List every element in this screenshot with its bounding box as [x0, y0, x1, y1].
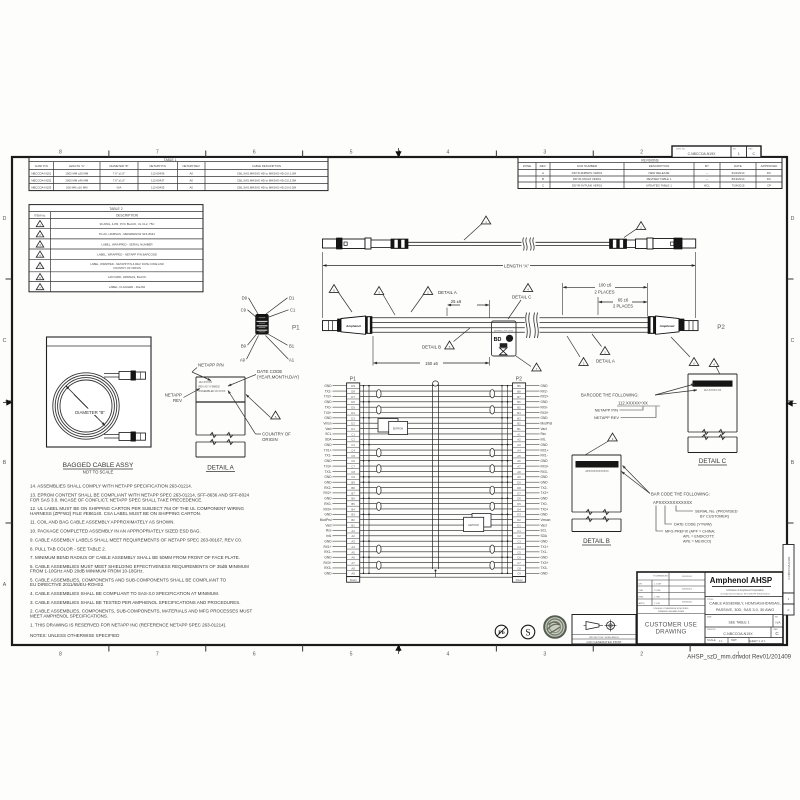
svg-text:Vact: Vact — [325, 523, 331, 527]
svg-text:A4: A4 — [517, 448, 521, 452]
svg-text:SERIAL No. (PROVIDED: SERIAL No. (PROVIDED — [695, 510, 738, 514]
svg-text:B8: B8 — [517, 389, 521, 393]
svg-text:A2: A2 — [517, 438, 521, 442]
svg-text:LABEL, FLAGGED - RoHS2: LABEL, FLAGGED - RoHS2 — [109, 285, 146, 289]
svg-text:NETAPP REV: NETAPP REV — [594, 415, 619, 420]
svg-text:REVISED TABLE 1: REVISED TABLE 1 — [647, 177, 672, 181]
svg-text:D2: D2 — [517, 518, 521, 522]
svg-text:DIMENSIONS ARE IN MM: DIMENSIONS ARE IN MM — [658, 610, 684, 613]
svg-text:65 ±6: 65 ±6 — [618, 297, 629, 302]
svg-text:TX0-: TX0- — [325, 405, 332, 409]
svg-text:DETAIL A: DETAIL A — [438, 290, 457, 295]
svg-text:GND: GND — [541, 475, 549, 479]
svg-text:DWG. NO.: DWG. NO. — [676, 148, 686, 150]
svg-text:SH.: SH. — [733, 148, 737, 150]
svg-text:REV A0 YYMMDD: REV A0 YYMMDD — [199, 385, 220, 389]
svg-text:30 AWG, 4-PR, PVC BLACK, UL CL: 30 AWG, 4-PR, PVC BLACK, UL CL2, 75C — [100, 222, 155, 226]
svg-text:8. PULL TAB COLOR - SEE TABL: 8. PULL TAB COLOR - SEE TABLE 2. — [30, 546, 106, 551]
svg-text:Vact: Vact — [541, 523, 547, 527]
svg-text:Rsv: Rsv — [326, 529, 332, 533]
svg-text:D8: D8 — [351, 389, 355, 393]
svg-text:D2: D2 — [351, 422, 355, 426]
svg-text:Shield: Shield — [350, 579, 357, 582]
svg-text:RX1-: RX1- — [324, 550, 331, 554]
svg-text:BAR CODE THE FOLLOWING:: BAR CODE THE FOLLOWING: — [651, 492, 710, 497]
svg-text:112-00437: 112-00437 — [151, 178, 165, 182]
svg-text:B7: B7 — [351, 491, 355, 495]
svg-text:Vact: Vact — [325, 427, 331, 431]
svg-text:NEW RELEASE: NEW RELEASE — [649, 171, 670, 175]
svg-text:11. COIL AND BAG CABLE ASSEM: 11. COIL AND BAG CABLE ASSEMBLY APPROXIM… — [30, 520, 175, 525]
svg-text:CBL,SAS,MHSAS HD to MHSAS HD,G: CBL,SAS,MHSAS HD to MHSAS HD,GU,1.0M — [237, 171, 297, 175]
svg-text:4: 4 — [446, 150, 449, 156]
svg-text:8: 8 — [59, 652, 62, 658]
svg-text:GND: GND — [324, 556, 332, 560]
svg-text:CABLE DESCRIPTION: CABLE DESCRIPTION — [252, 164, 281, 168]
svg-text:8/19/2014: 8/19/2014 — [732, 177, 745, 181]
svg-text:RX0-: RX0- — [541, 405, 548, 409]
svg-text:B5: B5 — [517, 406, 521, 410]
svg-text:A2: A2 — [351, 534, 355, 538]
svg-text:D6: D6 — [351, 400, 355, 404]
svg-text:C9: C9 — [241, 308, 247, 313]
svg-text:DC: DC — [767, 177, 771, 181]
svg-text:6/20/2015: 6/20/2015 — [682, 602, 693, 604]
svg-text:NOT TO SCALE: NOT TO SCALE — [83, 470, 114, 475]
svg-text:RX1+: RX1+ — [323, 545, 331, 549]
svg-text:D: D — [3, 216, 7, 222]
svg-text:A8: A8 — [517, 470, 521, 474]
svg-text:112-XXXXX: 112-XXXXX — [199, 380, 213, 384]
svg-text:20 Valley Street, Endicott, NY: 20 Valley Street, Endicott, NY 13760 PH:… — [720, 593, 770, 596]
svg-text:B: B — [791, 460, 795, 466]
svg-text:B9: B9 — [351, 481, 355, 485]
svg-text:DATE CODE: DATE CODE — [257, 369, 282, 374]
svg-text:B6: B6 — [351, 497, 355, 501]
svg-text:A6: A6 — [517, 459, 521, 463]
svg-text:B2: B2 — [517, 422, 521, 426]
svg-text:S: S — [525, 628, 530, 638]
svg-text:CP: CP — [767, 183, 771, 187]
svg-text:CUSTOMER USE: CUSTOMER USE — [645, 622, 697, 629]
svg-text:AMPHENOL P/N XXXXX: AMPHENOL P/N XXXXX — [494, 330, 514, 333]
svg-text:3: 3 — [543, 652, 546, 658]
svg-text:C7: C7 — [517, 561, 521, 565]
svg-text:500 MM ±10 MM: 500 MM ±10 MM — [66, 185, 88, 189]
svg-text:4: 4 — [446, 652, 449, 658]
svg-text:CHK: CHK — [639, 590, 644, 592]
svg-text:A0: A0 — [189, 171, 193, 175]
svg-text:TX1+: TX1+ — [541, 545, 549, 549]
svg-text:N/A: N/A — [775, 621, 780, 625]
svg-text:DETAIL C: DETAIL C — [512, 295, 531, 300]
svg-text:RX2-: RX2- — [541, 389, 548, 393]
svg-text:A: A — [542, 171, 544, 175]
svg-text:GND: GND — [541, 384, 549, 388]
svg-text:14. ASSEMBLIES SHALL COMPLY: 14. ASSEMBLIES SHALL COMPLY WITH NETAPP … — [30, 484, 192, 489]
svg-text:GND: GND — [541, 480, 549, 484]
svg-text:C1: C1 — [290, 308, 296, 313]
svg-text:A1: A1 — [289, 358, 295, 363]
svg-text:NBCCOA-N103: NBCCOA-N103 — [31, 185, 51, 189]
svg-text:SEE TABLE 1: SEE TABLE 1 — [729, 621, 750, 625]
svg-text:A0: A0 — [189, 178, 193, 182]
svg-text:APXXXXXXXXXXXX: APXXXXXXXXXXXX — [653, 500, 692, 505]
svg-text:DATE: DATE — [734, 164, 742, 168]
svg-text:P2: P2 — [516, 377, 522, 383]
svg-text:LENGTH "A": LENGTH "A" — [69, 164, 85, 168]
svg-text:HCL: HCL — [704, 183, 710, 187]
svg-text:DR: DR — [639, 584, 643, 586]
svg-text:112.XXXXX+XX: 112.XXXXX+XX — [618, 401, 648, 406]
svg-text:DDYR-9N8NPG VER01: DDYR-9N8NPG VER01 — [572, 171, 603, 175]
svg-text:TX3+: TX3+ — [541, 561, 549, 565]
svg-text:RX3+: RX3+ — [541, 464, 549, 468]
svg-text:A3: A3 — [351, 540, 355, 544]
svg-text:5: 5 — [350, 150, 353, 156]
svg-text:NBCCOA-N101: NBCCOA-N101 — [31, 171, 51, 175]
svg-text:SDA: SDA — [325, 438, 332, 442]
svg-text:RX1+: RX1+ — [541, 448, 549, 452]
svg-text:C: C — [3, 338, 7, 344]
svg-text:SWT:: SWT: — [731, 638, 737, 642]
svg-text:B9: B9 — [517, 384, 521, 388]
svg-text:A9: A9 — [351, 572, 355, 576]
svg-text:C: C — [791, 338, 795, 344]
svg-text:RX0+: RX0+ — [323, 507, 331, 511]
svg-text:P2: P2 — [717, 324, 725, 331]
svg-text:SDA: SDA — [541, 534, 548, 538]
svg-text:NETAPP P/N: NETAPP P/N — [595, 408, 619, 413]
svg-text:B5: B5 — [351, 502, 355, 506]
svg-text:N/A: N/A — [117, 185, 122, 189]
svg-text:GND: GND — [324, 384, 332, 388]
svg-text:TABLE 2: TABLE 2 — [109, 207, 122, 211]
svg-text:(YEAR,MONTH,DAY): (YEAR,MONTH,DAY) — [257, 375, 300, 380]
svg-text:A4: A4 — [351, 545, 355, 549]
svg-text:TX1+: TX1+ — [324, 448, 332, 452]
svg-text:BAGGED CABLE ASSY: BAGGED CABLE ASSY — [63, 462, 134, 469]
svg-text:GND: GND — [541, 539, 549, 543]
svg-text:3. CABLE ASSEMBLIES SHALL BE: 3. CABLE ASSEMBLIES SHALL BE TESTED PER … — [30, 600, 241, 605]
svg-text:AHSP_szD_mm.drwdot Rev01/20140: AHSP_szD_mm.drwdot Rev01/201409 — [687, 655, 791, 661]
svg-text:D: D — [791, 216, 795, 222]
svg-text:C7: C7 — [351, 465, 355, 469]
svg-text:NETAPP P/N: NETAPP P/N — [150, 164, 166, 168]
svg-text:TX2-: TX2- — [325, 389, 332, 393]
svg-text:Pb: Pb — [498, 630, 505, 636]
svg-text:MFG PREFIX (APF = CHINA;: MFG PREFIX (APF = CHINA; — [665, 530, 715, 534]
svg-text:GND: GND — [541, 497, 549, 501]
svg-text:GND: GND — [541, 443, 549, 447]
svg-text:TX3+: TX3+ — [324, 464, 332, 468]
svg-text:IntL: IntL — [326, 534, 332, 538]
svg-text:D9: D9 — [517, 481, 521, 485]
svg-text:A1: A1 — [517, 432, 521, 436]
svg-text:P1: P1 — [350, 377, 356, 383]
svg-text:Amphenol: Amphenol — [659, 324, 675, 328]
svg-text:7: 7 — [156, 150, 159, 156]
svg-text:A5: A5 — [351, 550, 355, 554]
svg-text:112-00435: 112-00435 — [151, 185, 165, 189]
svg-text:C2: C2 — [351, 438, 355, 442]
svg-text:IntL: IntL — [541, 438, 547, 442]
svg-text:RX2+: RX2+ — [323, 491, 331, 495]
svg-text:7.0" ±1.0": 7.0" ±1.0" — [113, 178, 125, 182]
svg-text:25 ±6: 25 ±6 — [451, 299, 462, 304]
svg-text:REV: REV — [173, 398, 182, 403]
svg-text:A7: A7 — [351, 561, 355, 565]
svg-text:APPD: APPD — [639, 602, 645, 605]
svg-text:DESCRIPTION: DESCRIPTION — [649, 164, 670, 168]
svg-text:D5: D5 — [517, 502, 521, 506]
svg-text:6/22/2014: 6/22/2014 — [732, 171, 745, 175]
svg-text:TX2-: TX2- — [541, 486, 548, 490]
svg-text:A0: A0 — [189, 185, 193, 189]
svg-text:SHEET 1 of 1: SHEET 1 of 1 — [748, 639, 765, 643]
svg-text:GND: GND — [324, 572, 332, 576]
svg-text:GND: GND — [541, 416, 549, 420]
svg-text:GND: GND — [324, 443, 332, 447]
svg-text:B2: B2 — [351, 518, 355, 522]
svg-text:A6: A6 — [351, 556, 355, 560]
svg-text:C1: C1 — [351, 432, 355, 436]
svg-text:FROM 1-10GHz AND 20dB MINIMUM: FROM 1-10GHz AND 20dB MINIMUM FROM 10-18… — [30, 569, 144, 574]
svg-text:NOTES: UNLESS OTHERWISE SPEC: NOTES: UNLESS OTHERWISE SPECIFIED — [30, 633, 120, 638]
svg-text:LENGTH “A”: LENGTH “A” — [504, 263, 529, 268]
svg-text:EU DIRECTIVE 2011/65/EU-ROHS2.: EU DIRECTIVE 2011/65/EU-ROHS2. — [30, 582, 104, 587]
svg-text:TX0+: TX0+ — [324, 411, 332, 415]
svg-text:B1: B1 — [289, 344, 295, 349]
svg-text:B1: B1 — [517, 427, 521, 431]
svg-text:7: 7 — [156, 652, 159, 658]
svg-text:GND: GND — [324, 497, 332, 501]
svg-text:RX3-: RX3- — [541, 470, 548, 474]
svg-text:8: 8 — [59, 150, 62, 156]
svg-text:CBL,SAS,MHSAS HD to MHSAS HD,G: CBL,SAS,MHSAS HD to MHSAS HD,GU,2.0M — [237, 178, 297, 182]
svg-text:C9: C9 — [351, 475, 355, 479]
svg-text:C3: C3 — [517, 540, 521, 544]
svg-text:D8: D8 — [517, 486, 521, 490]
svg-text:SCALE:: SCALE: — [707, 638, 717, 642]
svg-text:DESCRIPTION: DESCRIPTION — [116, 214, 138, 218]
svg-text:B3: B3 — [351, 513, 355, 517]
svg-text:DIAMETER “B”: DIAMETER “B” — [75, 410, 105, 415]
svg-text:GND: GND — [541, 556, 549, 560]
svg-text:TX2+: TX2+ — [324, 395, 332, 399]
svg-text:TOLERANCES:: TOLERANCES: — [653, 575, 669, 578]
svg-text:REVISIONS: REVISIONS — [641, 158, 658, 162]
svg-text:NETAPP REV: NETAPP REV — [182, 164, 200, 168]
svg-text:C6: C6 — [517, 556, 521, 560]
svg-text:AHSP P/N: AHSP P/N — [35, 164, 48, 168]
svg-text:Vact: Vact — [541, 427, 547, 431]
svg-text:C5: C5 — [517, 550, 521, 554]
svg-text:UNLESS OTHERWISE SPECIFIED: UNLESS OTHERWISE SPECIFIED — [654, 608, 689, 610]
svg-text:B4: B4 — [517, 411, 521, 415]
svg-text:DC: DC — [767, 171, 771, 175]
svg-text:ORIGIN: ORIGIN — [262, 437, 278, 442]
svg-text:TX1-: TX1- — [541, 550, 548, 554]
svg-text:APXXXXXXXXXXXX: APXXXXXXXXXXXX — [585, 470, 609, 473]
svg-text:--: -- — [706, 177, 708, 181]
svg-text:B1: B1 — [351, 523, 355, 527]
svg-text:C4: C4 — [517, 545, 521, 549]
svg-text:7/24/2015: 7/24/2015 — [732, 183, 745, 187]
svg-text:GND: GND — [541, 400, 549, 404]
svg-text:ModPrsl: ModPrsl — [320, 518, 332, 522]
svg-text:D5: D5 — [351, 406, 355, 410]
svg-text:ITEM No.: ITEM No. — [34, 214, 46, 218]
svg-text:GND: GND — [541, 572, 549, 576]
svg-text:PLUG, HDMSAS - REFERENCE SFF: PLUG, HDMSAS - REFERENCE SFF-8644 — [99, 232, 155, 236]
svg-text:150 ±6: 150 ±6 — [425, 361, 438, 366]
svg-text:APL = ENDICOTT;: APL = ENDICOTT; — [683, 535, 714, 539]
svg-text:DIAMETER "B": DIAMETER "B" — [109, 164, 128, 168]
svg-text:Amphenol: Amphenol — [345, 324, 361, 328]
svg-text:5: 5 — [350, 652, 353, 658]
svg-text:GND: GND — [324, 480, 332, 484]
svg-text:--: -- — [706, 171, 708, 175]
svg-text:7. MINIMUM BEND RADIUS OF CA: 7. MINIMUM BEND RADIUS OF CABLE ASSEMBLY… — [30, 555, 240, 560]
svg-text:B3: B3 — [517, 416, 521, 420]
svg-text:D3: D3 — [351, 416, 355, 420]
svg-text:APE = MEXICO): APE = MEXICO) — [683, 540, 712, 544]
svg-text:SCL: SCL — [541, 529, 547, 533]
svg-text:C3: C3 — [351, 443, 355, 447]
svg-text:B7: B7 — [517, 395, 521, 399]
svg-text:BD: BD — [494, 337, 502, 343]
svg-text:EEPROM: EEPROM — [468, 524, 478, 527]
svg-text:LABEL, WRAPPED - NETAPP P/N: LABEL, WRAPPED - NETAPP P/N BARCODE — [97, 253, 157, 257]
svg-text:LABEL, WRAPPED - SERIAL NUMB: LABEL, WRAPPED - SERIAL NUMBER — [101, 242, 152, 246]
svg-text:GND: GND — [324, 459, 332, 463]
svg-text:LABEL, WRAPPED - NETAPP P/N: LABEL, WRAPPED - NETAPP P/N & REV, DATE … — [90, 262, 163, 266]
svg-text:C-NBCCOA-N19X: C-NBCCOA-N19X — [787, 556, 791, 579]
svg-text:B9: B9 — [241, 344, 247, 349]
svg-text:NETAPP: NETAPP — [165, 393, 182, 398]
svg-text:B: B — [3, 460, 7, 466]
svg-text:L. WU: L. WU — [654, 597, 660, 599]
svg-text:C-NBCCOA-N19X: C-NBCCOA-N19X — [723, 632, 753, 636]
svg-text:2 PLACES: 2 PLACES — [594, 290, 614, 295]
svg-text:B6: B6 — [517, 400, 521, 404]
svg-text:T. LIN: T. LIN — [654, 603, 660, 605]
svg-text:C8: C8 — [517, 566, 521, 570]
svg-text:UPDATED TABLE 1: UPDATED TABLE 1 — [646, 183, 672, 187]
svg-text:COUNTRY OF ORIGIN: COUNTRY OF ORIGIN — [113, 266, 141, 270]
svg-text:COUNTRY OF: COUNTRY OF — [262, 432, 291, 437]
svg-text:Vmsn: Vmsn — [323, 422, 331, 426]
svg-text:RX2-: RX2- — [324, 486, 331, 490]
svg-text:RX3-: RX3- — [324, 566, 331, 570]
svg-text:J. DOE: J. DOE — [654, 584, 662, 586]
svg-text:P1: P1 — [292, 325, 300, 332]
svg-text:D9: D9 — [242, 296, 248, 301]
svg-text:6/20/2014: 6/20/2014 — [682, 589, 693, 591]
svg-text:2: 2 — [640, 652, 643, 658]
svg-text:DDYR-9YFUN0 VER01: DDYR-9YFUN0 VER01 — [572, 183, 603, 187]
svg-text:C5: C5 — [351, 454, 355, 458]
svg-text:4. CABLE ASSEMBLIES SHALL BE: 4. CABLE ASSEMBLIES SHALL BE COMPLIANT T… — [30, 591, 219, 596]
svg-text:APPROVED: APPROVED — [761, 164, 779, 168]
svg-text:C8: C8 — [351, 470, 355, 474]
svg-text:D4: D4 — [517, 507, 521, 511]
svg-text:DETAIL C: DETAIL C — [699, 458, 727, 465]
svg-text:DETAIL B: DETAIL B — [422, 345, 441, 350]
svg-text:DETAIL A: DETAIL A — [207, 465, 234, 472]
svg-text:DETAIL A: DETAIL A — [596, 359, 615, 364]
svg-text:Vmsan: Vmsan — [541, 518, 551, 522]
svg-text:RX3+: RX3+ — [323, 561, 331, 565]
svg-text:D7: D7 — [351, 395, 355, 399]
svg-text:B4: B4 — [351, 507, 355, 511]
svg-text:1. THIS DRAWING IS RESERVED: 1. THIS DRAWING IS RESERVED FOR NETAPP I… — [30, 623, 226, 628]
svg-text:DDYR-9NUL6 VER01: DDYR-9NUL6 VER01 — [573, 177, 602, 181]
svg-text:ZONE: ZONE — [523, 164, 531, 168]
svg-text:A7: A7 — [517, 465, 521, 469]
svg-text:REV.: REV. — [749, 148, 754, 150]
svg-text:PROJECTION: THIRD ANGLE: PROJECTION: THIRD ANGLE — [589, 636, 619, 639]
svg-text:REV.: REV. — [540, 164, 547, 168]
svg-text:NETAPP P/N: NETAPP P/N — [198, 363, 224, 368]
svg-text:A Division of Amphenol Cor: A Division of Amphenol Corporation — [726, 589, 764, 592]
svg-text:6/20/2014: 6/20/2014 — [682, 576, 693, 578]
svg-text:GND: GND — [324, 513, 332, 517]
svg-text:SIZE: SIZE — [707, 617, 712, 619]
svg-text:LANYARD, HDMSAS, BLACK: LANYARD, HDMSAS, BLACK — [108, 275, 147, 279]
svg-text:A9: A9 — [517, 475, 521, 479]
svg-text:112-00436: 112-00436 — [151, 171, 165, 175]
svg-text:CABLE ASSEMBLY, HDMSAS/HDMSAS,: CABLE ASSEMBLY, HDMSAS/HDMSAS, — [709, 601, 780, 606]
svg-text:112-XXXXX-XX: 112-XXXXX-XX — [704, 389, 722, 392]
svg-text:CAD GENERATED PRINT: CAD GENERATED PRINT — [586, 640, 622, 644]
svg-text:PASSIVE, 30D, SAS 3.0, 30 AWG: PASSIVE, 30D, SAS 3.0, 30 AWG — [716, 607, 775, 612]
svg-text:10. PACKAGE COMPLETED ASSEMB: 10. PACKAGE COMPLETED ASSEMBLY IN AN APP… — [30, 528, 201, 533]
svg-text:D1: D1 — [351, 427, 355, 431]
svg-text:RX2+: RX2+ — [541, 395, 549, 399]
svg-text:6: 6 — [253, 150, 256, 156]
svg-text:BY: BY — [705, 164, 709, 168]
svg-text:RX1-: RX1- — [541, 454, 548, 458]
svg-text:EEPROM: EEPROM — [393, 428, 403, 431]
svg-text:A9: A9 — [240, 358, 246, 363]
svg-text:ModPrsl: ModPrsl — [541, 422, 553, 426]
svg-text:CBL,SAS,MHSAS HD to MHSAS HD,G: CBL,SAS,MHSAS HD to MHSAS HD,GU,0.5M — [237, 185, 297, 189]
svg-text:Amphenol AHSP: Amphenol AHSP — [710, 576, 772, 585]
svg-text:TX0-: TX0- — [541, 502, 548, 506]
svg-text:GND: GND — [324, 400, 332, 404]
svg-text:2000 MM ±40 MM: 2000 MM ±40 MM — [65, 178, 89, 182]
svg-text:SCL: SCL — [325, 432, 331, 436]
svg-text:DWG NO.: DWG NO. — [707, 629, 716, 631]
svg-text:DETAIL B: DETAIL B — [583, 538, 610, 545]
svg-text:GND: GND — [541, 513, 549, 517]
svg-text:A8: A8 — [351, 566, 355, 570]
svg-text:Shield: Shield — [516, 579, 523, 582]
svg-text:D3: D3 — [517, 513, 521, 517]
svg-text:C1: C1 — [517, 529, 521, 533]
svg-text:C: C — [542, 183, 544, 187]
svg-text:P. KIM: P. KIM — [654, 590, 660, 592]
svg-text:A: A — [3, 582, 7, 588]
svg-text:C2: C2 — [517, 534, 521, 538]
svg-text:MEET AMPHENOL SPECIFICATIONS.: MEET AMPHENOL SPECIFICATIONS. — [30, 613, 108, 618]
svg-text:TX3-: TX3- — [541, 566, 548, 570]
svg-text:B: B — [542, 177, 544, 181]
svg-text:BARCODE THE FOLLOWING:: BARCODE THE FOLLOWING: — [581, 393, 639, 398]
svg-text:Rsv: Rsv — [541, 432, 547, 436]
